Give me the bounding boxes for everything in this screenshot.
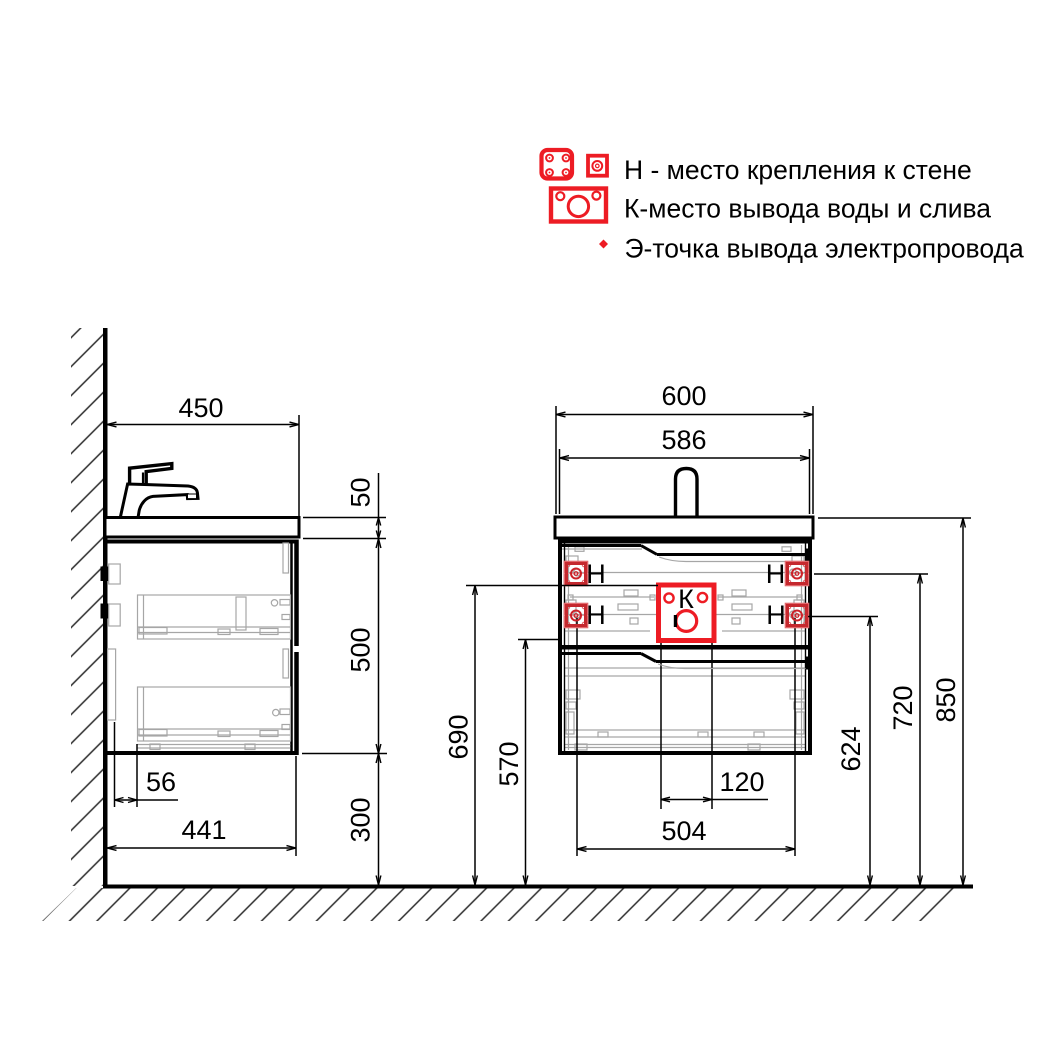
svg-text:600: 600 xyxy=(661,381,706,411)
svg-text:500: 500 xyxy=(346,627,376,672)
svg-text:570: 570 xyxy=(494,741,524,786)
svg-text:Н: Н xyxy=(586,600,606,630)
svg-text:Н - место крепления к стене: Н - место крепления к стене xyxy=(624,155,972,185)
svg-text:504: 504 xyxy=(661,816,706,846)
svg-text:Н: Н xyxy=(766,600,786,630)
svg-text:К: К xyxy=(678,584,694,614)
svg-text:Н: Н xyxy=(766,559,786,589)
svg-text:850: 850 xyxy=(931,677,961,722)
svg-text:К-место вывода воды и слива: К-место вывода воды и слива xyxy=(624,194,991,224)
svg-text:300: 300 xyxy=(346,797,376,842)
svg-text:56: 56 xyxy=(146,767,176,797)
svg-text:450: 450 xyxy=(178,393,223,423)
svg-text:Н: Н xyxy=(586,559,606,589)
svg-text:720: 720 xyxy=(888,685,918,730)
svg-text:50: 50 xyxy=(346,477,376,507)
svg-text:120: 120 xyxy=(719,767,764,797)
svg-text:624: 624 xyxy=(836,726,866,771)
svg-text:Э-точка вывода электропровода: Э-точка вывода электропровода xyxy=(625,234,1024,264)
svg-text:690: 690 xyxy=(444,714,474,759)
svg-text:586: 586 xyxy=(661,425,706,455)
svg-text:441: 441 xyxy=(181,815,226,845)
